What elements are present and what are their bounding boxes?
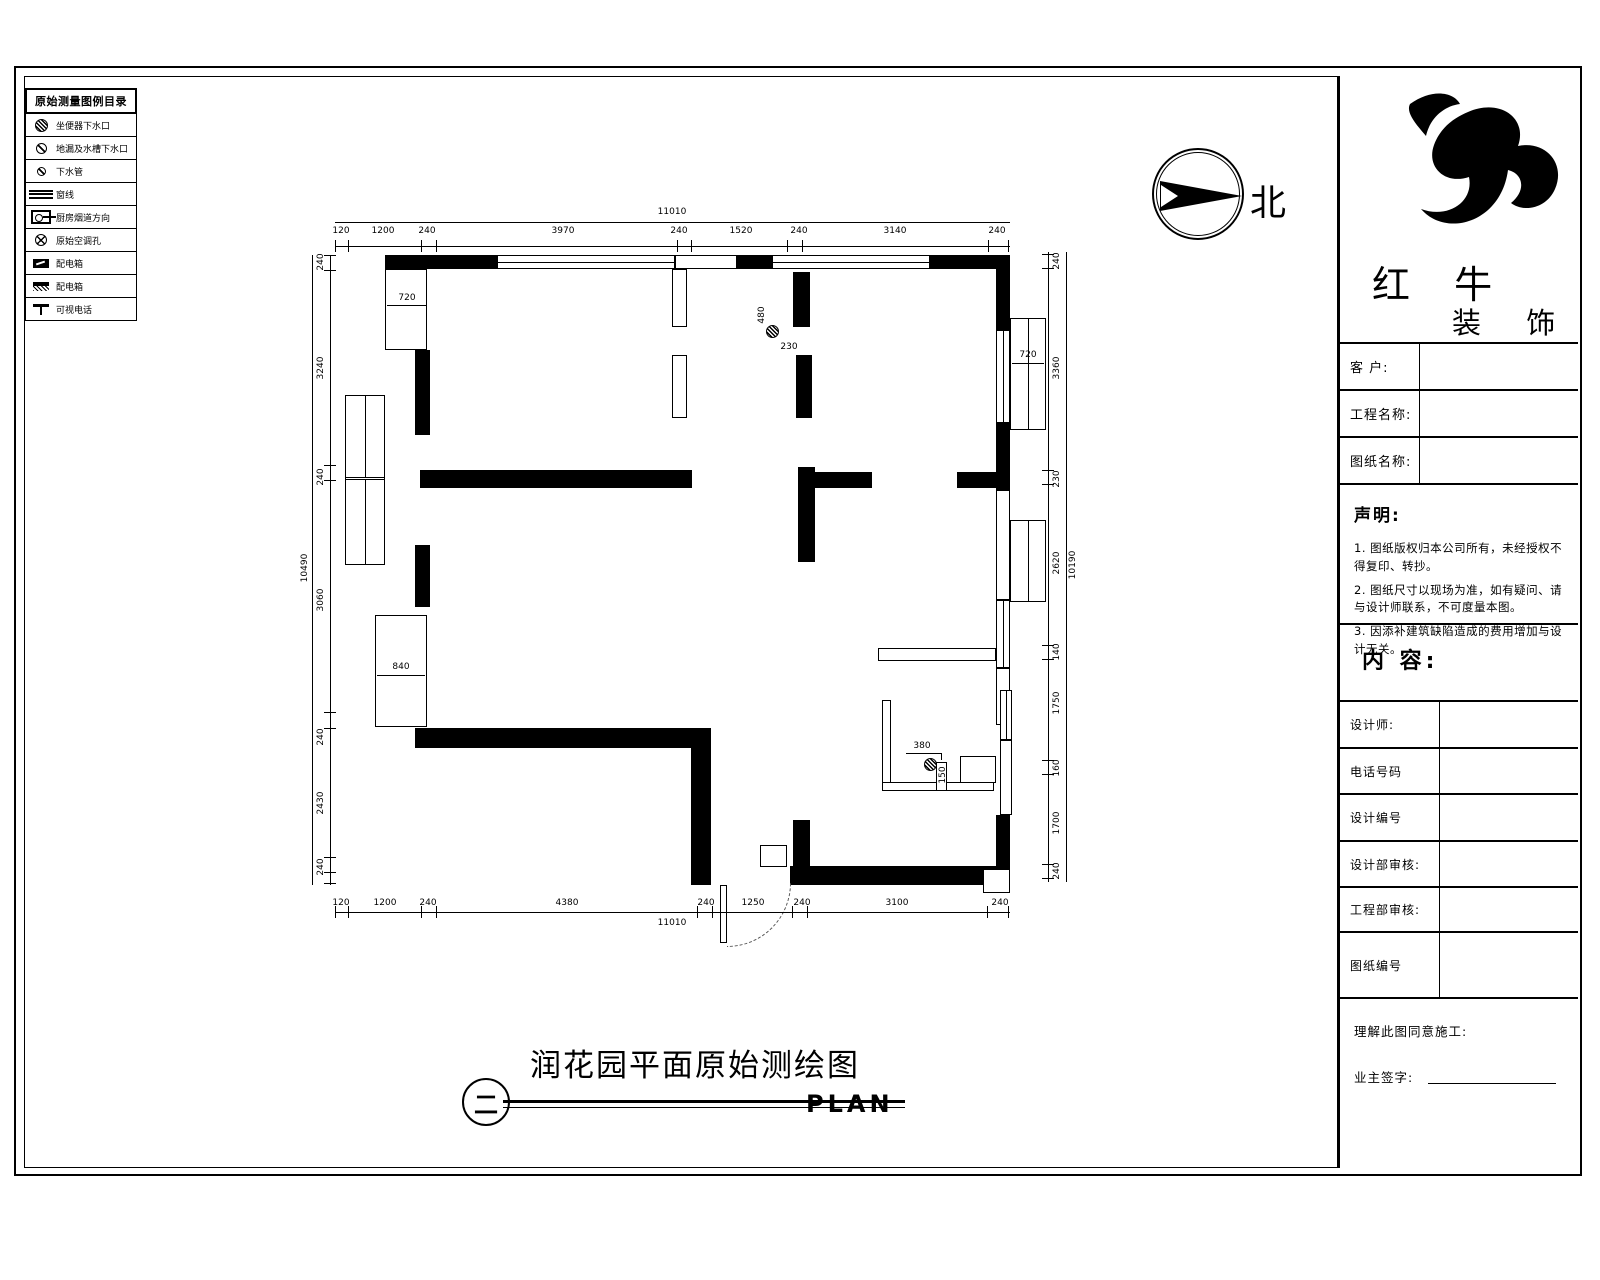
dim-tick xyxy=(712,906,713,918)
dimension-label: 1200 xyxy=(372,226,395,236)
drawing-sheet: 原始测量图例目录 坐便器下水口 地漏及水槽下水口 下水管 窗线 厨房烟道方向 原… xyxy=(0,0,1600,1280)
dimension-label: 720 xyxy=(398,293,415,303)
design-no-value xyxy=(1440,795,1578,840)
legend-label: 配电箱 xyxy=(56,280,83,293)
north-arrow-icon xyxy=(1154,150,1246,242)
window xyxy=(996,600,1010,668)
dim-tick xyxy=(987,906,988,918)
wall-opening xyxy=(996,490,1010,600)
designer-value xyxy=(1440,702,1578,747)
dim-line xyxy=(387,305,427,306)
dimension-label: 840 xyxy=(392,662,409,672)
dim-tick xyxy=(1042,470,1054,471)
dim-tick xyxy=(436,240,437,252)
statement-item: 1. 图纸版权归本公司所有，未经授权不得复印、转抄。 xyxy=(1354,540,1570,576)
bay-window xyxy=(345,395,385,565)
brand-logo xyxy=(1348,82,1570,252)
dim-tick xyxy=(802,240,803,252)
dim-tick xyxy=(421,906,422,918)
dimension-label: 240 xyxy=(316,728,326,745)
dimension-label: 240 xyxy=(793,898,810,908)
dim-tick xyxy=(324,480,336,481)
wall-segment xyxy=(420,470,692,488)
wall-segment xyxy=(796,355,812,418)
dim-tick xyxy=(1008,906,1009,918)
dim-tick xyxy=(324,270,336,271)
legend-row: 下水管 xyxy=(25,160,137,183)
bay-window xyxy=(1010,520,1046,602)
dimension-label: 3060 xyxy=(316,589,326,612)
legend-title: 原始测量图例目录 xyxy=(25,88,137,114)
dim-tick xyxy=(792,906,793,918)
wall-opening xyxy=(1000,740,1012,815)
toilet-drain-icon xyxy=(35,119,48,132)
wall-segment xyxy=(996,255,1010,330)
brand-suffix: 装 饰 xyxy=(1452,300,1573,342)
content-cell: 内 容: xyxy=(1340,625,1578,702)
legend-row: 可视电话 xyxy=(25,298,137,321)
dimension-label: 2620 xyxy=(1052,552,1062,575)
statement-block: 声明: 1. 图纸版权归本公司所有，未经授权不得复印、转抄。 2. 图纸尺寸以现… xyxy=(1340,485,1578,625)
design-no-row: 设计编号 xyxy=(1340,795,1578,842)
client-row: 客 户: xyxy=(1340,344,1578,391)
wall-segment xyxy=(415,545,430,607)
project-label: 工程名称: xyxy=(1340,391,1420,436)
design-no-label: 设计编号 xyxy=(1340,795,1440,840)
wall-segment xyxy=(415,350,430,435)
dim-tick xyxy=(807,906,808,918)
legend-label: 地漏及水槽下水口 xyxy=(56,142,128,155)
wall-segment xyxy=(385,255,497,269)
drain-pipe-icon xyxy=(37,167,46,176)
door-swing-arc xyxy=(727,883,791,947)
client-label: 客 户: xyxy=(1340,344,1420,389)
toilet-drain-symbol xyxy=(924,758,937,771)
dim-line-left xyxy=(330,255,331,885)
legend-row: 坐便器下水口 xyxy=(25,114,137,137)
dim-tick xyxy=(1008,240,1009,252)
agree-label: 理解此图同意施工: xyxy=(1354,1021,1467,1040)
dim-tick xyxy=(1042,760,1054,761)
dim-line xyxy=(941,753,942,760)
dim-tick xyxy=(691,240,692,252)
videophone-icon xyxy=(33,304,49,315)
dim-tick xyxy=(677,240,678,252)
closet xyxy=(385,269,427,350)
dim-tick xyxy=(324,465,336,466)
column xyxy=(672,355,687,418)
wall-segment xyxy=(790,866,996,885)
dim-tick xyxy=(324,712,336,713)
drawing-title-en: PLAN xyxy=(806,1090,894,1118)
window xyxy=(1000,690,1012,740)
column xyxy=(672,269,687,327)
dimension-label: 10490 xyxy=(300,554,310,583)
dimension-label: 1200 xyxy=(374,898,397,908)
dim-tick xyxy=(1042,645,1054,646)
dim-tick xyxy=(436,906,437,918)
dimension-label: 240 xyxy=(316,858,326,875)
dimension-label: 1250 xyxy=(742,898,765,908)
dimension-label: 230 xyxy=(1052,470,1062,487)
dimension-label: 240 xyxy=(991,898,1008,908)
dimension-label: 150 xyxy=(938,766,948,783)
window-line-icon xyxy=(29,190,53,199)
dimension-label: 720 xyxy=(1019,350,1036,360)
bathroom-step xyxy=(960,756,996,783)
door-leaf xyxy=(720,885,727,943)
legend-label: 下水管 xyxy=(56,165,83,178)
bathroom-wall xyxy=(882,700,891,790)
drawing-name-row: 图纸名称: xyxy=(1340,438,1578,485)
dimension-label: 240 xyxy=(316,468,326,485)
sheet-no-value xyxy=(1440,933,1578,997)
eng-review-label: 工程部审核: xyxy=(1340,888,1440,931)
floor-plan: 720 720 840 480 230 380 150 xyxy=(300,205,1100,945)
dimension-label: 240 xyxy=(790,226,807,236)
door-jamb xyxy=(760,845,787,867)
north-label: 北 xyxy=(1250,174,1286,226)
window xyxy=(497,255,675,269)
dimension-label: 1700 xyxy=(1052,812,1062,835)
dim-tick xyxy=(1042,878,1054,879)
dimension-label: 10190 xyxy=(1068,551,1078,580)
north-compass xyxy=(1152,148,1244,240)
design-review-row: 设计部审核: xyxy=(1340,842,1578,888)
toilet-drain-symbol xyxy=(766,325,779,338)
dim-line-right xyxy=(1048,252,1049,882)
dimension-label: 3360 xyxy=(1052,357,1062,380)
drawing-title: 润花园平面原始测绘图 xyxy=(530,1040,860,1085)
sheet-no-row: 图纸编号 xyxy=(1340,933,1578,999)
wall-segment xyxy=(415,728,697,748)
sheet-no-label: 图纸编号 xyxy=(1340,933,1440,997)
project-value xyxy=(1420,391,1578,436)
dim-tick xyxy=(1042,484,1054,485)
dimension-label: 230 xyxy=(780,342,797,352)
dimension-label: 1520 xyxy=(730,226,753,236)
legend-row: 厨房烟道方向 xyxy=(25,206,137,229)
dim-line-right-overall xyxy=(1066,252,1067,882)
dim-tick xyxy=(348,240,349,252)
legend-label: 厨房烟道方向 xyxy=(56,211,110,224)
dim-tick xyxy=(324,255,336,256)
dimension-label: 4380 xyxy=(556,898,579,908)
legend-label: 可视电话 xyxy=(56,303,92,316)
dimension-label: 380 xyxy=(913,741,930,751)
dimension-label: 11010 xyxy=(658,918,687,928)
corner-box xyxy=(983,869,1010,893)
ac-hole-icon xyxy=(35,234,47,246)
dim-tick xyxy=(1042,254,1054,255)
dimension-label: 240 xyxy=(670,226,687,236)
dim-tick xyxy=(421,240,422,252)
dimension-label: 11010 xyxy=(658,207,687,217)
dimension-label: 3140 xyxy=(884,226,907,236)
dim-line xyxy=(906,753,942,754)
dim-tick xyxy=(335,240,336,252)
dimension-label: 3240 xyxy=(316,357,326,380)
wall-segment xyxy=(691,728,711,885)
dim-line-top-overall xyxy=(335,222,1010,223)
drawing-name-value xyxy=(1420,438,1578,483)
phone-row: 电话号码 xyxy=(1340,749,1578,795)
legend-label: 窗线 xyxy=(56,188,74,201)
dim-line xyxy=(377,675,425,676)
designer-row: 设计师: xyxy=(1340,702,1578,749)
logo-cell: 红 牛 装 饰 xyxy=(1340,76,1578,344)
dimension-label: 1750 xyxy=(1052,692,1062,715)
dimension-label: 120 xyxy=(332,226,349,236)
wall-segment xyxy=(793,272,810,327)
power-box-icon xyxy=(33,259,49,268)
bay-window-divider xyxy=(345,477,385,480)
phone-label: 电话号码 xyxy=(1340,749,1440,793)
wall-opening xyxy=(675,255,737,269)
legend-row: 窗线 xyxy=(25,183,137,206)
dim-tick xyxy=(1042,864,1054,865)
eng-review-value xyxy=(1440,888,1578,931)
legend-row: 配电箱 xyxy=(25,252,137,275)
signature-line xyxy=(1428,1083,1556,1084)
legend-row: 地漏及水槽下水口 xyxy=(25,137,137,160)
dim-line xyxy=(1012,363,1044,364)
dimension-label: 3970 xyxy=(552,226,575,236)
wall-segment xyxy=(737,255,772,269)
counter xyxy=(878,648,996,661)
signature-block: 理解此图同意施工: 业主签字: xyxy=(1340,999,1578,1168)
dimension-label: 480 xyxy=(757,306,767,323)
design-review-value xyxy=(1440,842,1578,886)
phone-value xyxy=(1440,749,1578,793)
statement-item: 2. 图纸尺寸以现场为准，如有疑问、请与设计师联系，不可度量本图。 xyxy=(1354,582,1570,618)
dim-tick xyxy=(324,883,336,884)
dimension-label: 3100 xyxy=(886,898,909,908)
legend-label: 配电箱 xyxy=(56,257,83,270)
floor-drain-icon xyxy=(36,143,47,154)
wall-segment xyxy=(793,820,810,866)
wall-segment xyxy=(957,472,1010,488)
dim-tick xyxy=(1042,774,1054,775)
dimension-label: 240 xyxy=(988,226,1005,236)
window xyxy=(996,330,1010,423)
client-value xyxy=(1420,344,1578,389)
dimension-label: 240 xyxy=(418,226,435,236)
dim-tick xyxy=(348,906,349,918)
dim-line-left-overall xyxy=(312,255,313,885)
wall-segment xyxy=(815,472,872,488)
window xyxy=(772,255,930,269)
power-box-2-icon xyxy=(33,282,49,291)
dimension-label: 2430 xyxy=(316,792,326,815)
legend-row: 原始空调孔 xyxy=(25,229,137,252)
dim-tick xyxy=(988,240,989,252)
project-row: 工程名称: xyxy=(1340,391,1578,438)
legend-label: 原始空调孔 xyxy=(56,234,101,247)
wall-segment xyxy=(798,467,815,562)
dim-tick xyxy=(335,906,336,918)
designer-label: 设计师: xyxy=(1340,702,1440,747)
legend-panel: 原始测量图例目录 坐便器下水口 地漏及水槽下水口 下水管 窗线 厨房烟道方向 原… xyxy=(25,88,137,321)
drawing-name-label: 图纸名称: xyxy=(1340,438,1420,483)
dim-tick xyxy=(697,906,698,918)
owner-sign-label: 业主签字: xyxy=(1354,1067,1413,1086)
design-review-label: 设计部审核: xyxy=(1340,842,1440,886)
dim-tick xyxy=(324,872,336,873)
bay-window xyxy=(1010,318,1046,430)
title-block: 红 牛 装 饰 客 户: 工程名称: 图纸名称: 声明: 1. 图纸版权归本公司… xyxy=(1337,76,1578,1168)
statement-title: 声明: xyxy=(1354,501,1570,526)
legend-row: 配电箱 xyxy=(25,275,137,298)
dim-tick xyxy=(787,240,788,252)
legend-label: 坐便器下水口 xyxy=(56,119,110,132)
dim-tick xyxy=(324,728,336,729)
kitchen-flue-icon xyxy=(31,210,51,224)
dim-tick xyxy=(1042,268,1054,269)
dim-tick xyxy=(324,857,336,858)
dim-tick xyxy=(1042,659,1054,660)
eng-review-row: 工程部审核: xyxy=(1340,888,1578,933)
